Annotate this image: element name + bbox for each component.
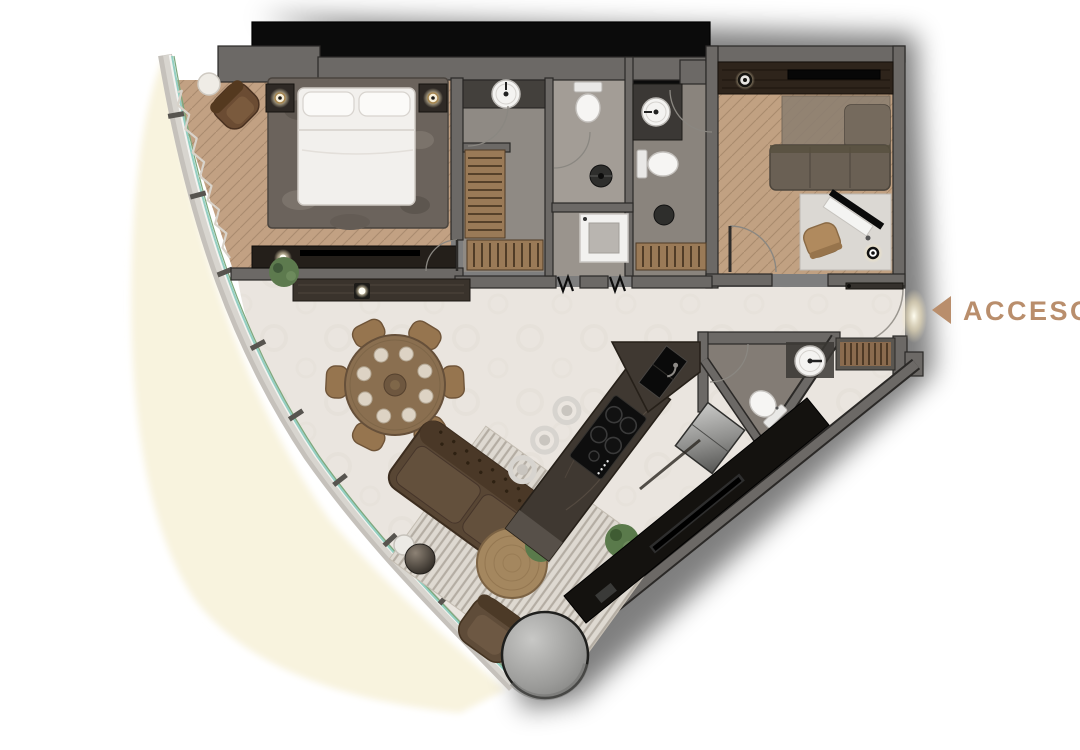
tv (788, 70, 880, 79)
floor-plan-canvas: ACCESO (0, 0, 1080, 750)
desk-area (800, 189, 891, 270)
round-sink (492, 80, 520, 108)
bed-pillow (303, 92, 354, 116)
wardrobe-shelving (636, 243, 706, 270)
bed (298, 88, 415, 205)
coat-closet (836, 338, 895, 370)
nightstand-left (266, 84, 294, 112)
bed-pillow (359, 92, 410, 116)
media-wall (718, 62, 893, 94)
access-label: ACCESO (963, 296, 1080, 326)
arrow-left-icon (932, 296, 951, 324)
entry-door-leaf (846, 283, 903, 289)
mouse (866, 236, 871, 241)
structural-column (502, 612, 588, 698)
nightstand-right (419, 84, 447, 112)
round-sink (642, 98, 670, 126)
sphere-lamp (405, 544, 435, 574)
floor-plan-page: ACCESO (0, 0, 1080, 750)
toilet (574, 82, 602, 122)
round-sink (795, 346, 825, 376)
shower-drain (590, 165, 612, 187)
daylight-glow (901, 289, 927, 343)
shower-room (580, 214, 628, 262)
side-table (198, 73, 220, 95)
toilet (637, 150, 678, 178)
plant (269, 257, 299, 287)
access-label-group: ACCESO (932, 296, 1080, 326)
shower-drain (654, 205, 674, 225)
